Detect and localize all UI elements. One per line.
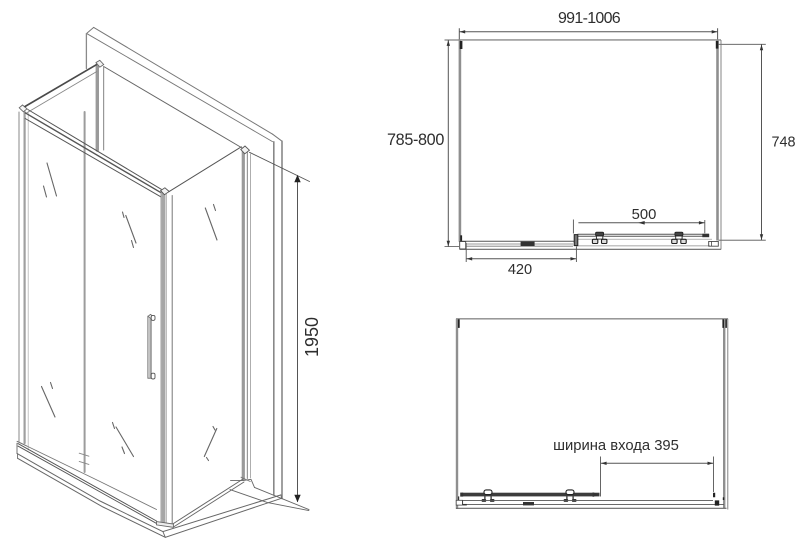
svg-text:1950: 1950 xyxy=(302,317,322,357)
svg-text:500: 500 xyxy=(632,207,657,223)
svg-text:748: 748 xyxy=(772,134,796,150)
svg-text:ширина входа 395: ширина входа 395 xyxy=(553,438,679,454)
svg-text:785-800: 785-800 xyxy=(387,131,444,149)
svg-text:420: 420 xyxy=(508,262,532,278)
svg-text:991-1006: 991-1006 xyxy=(558,10,621,27)
